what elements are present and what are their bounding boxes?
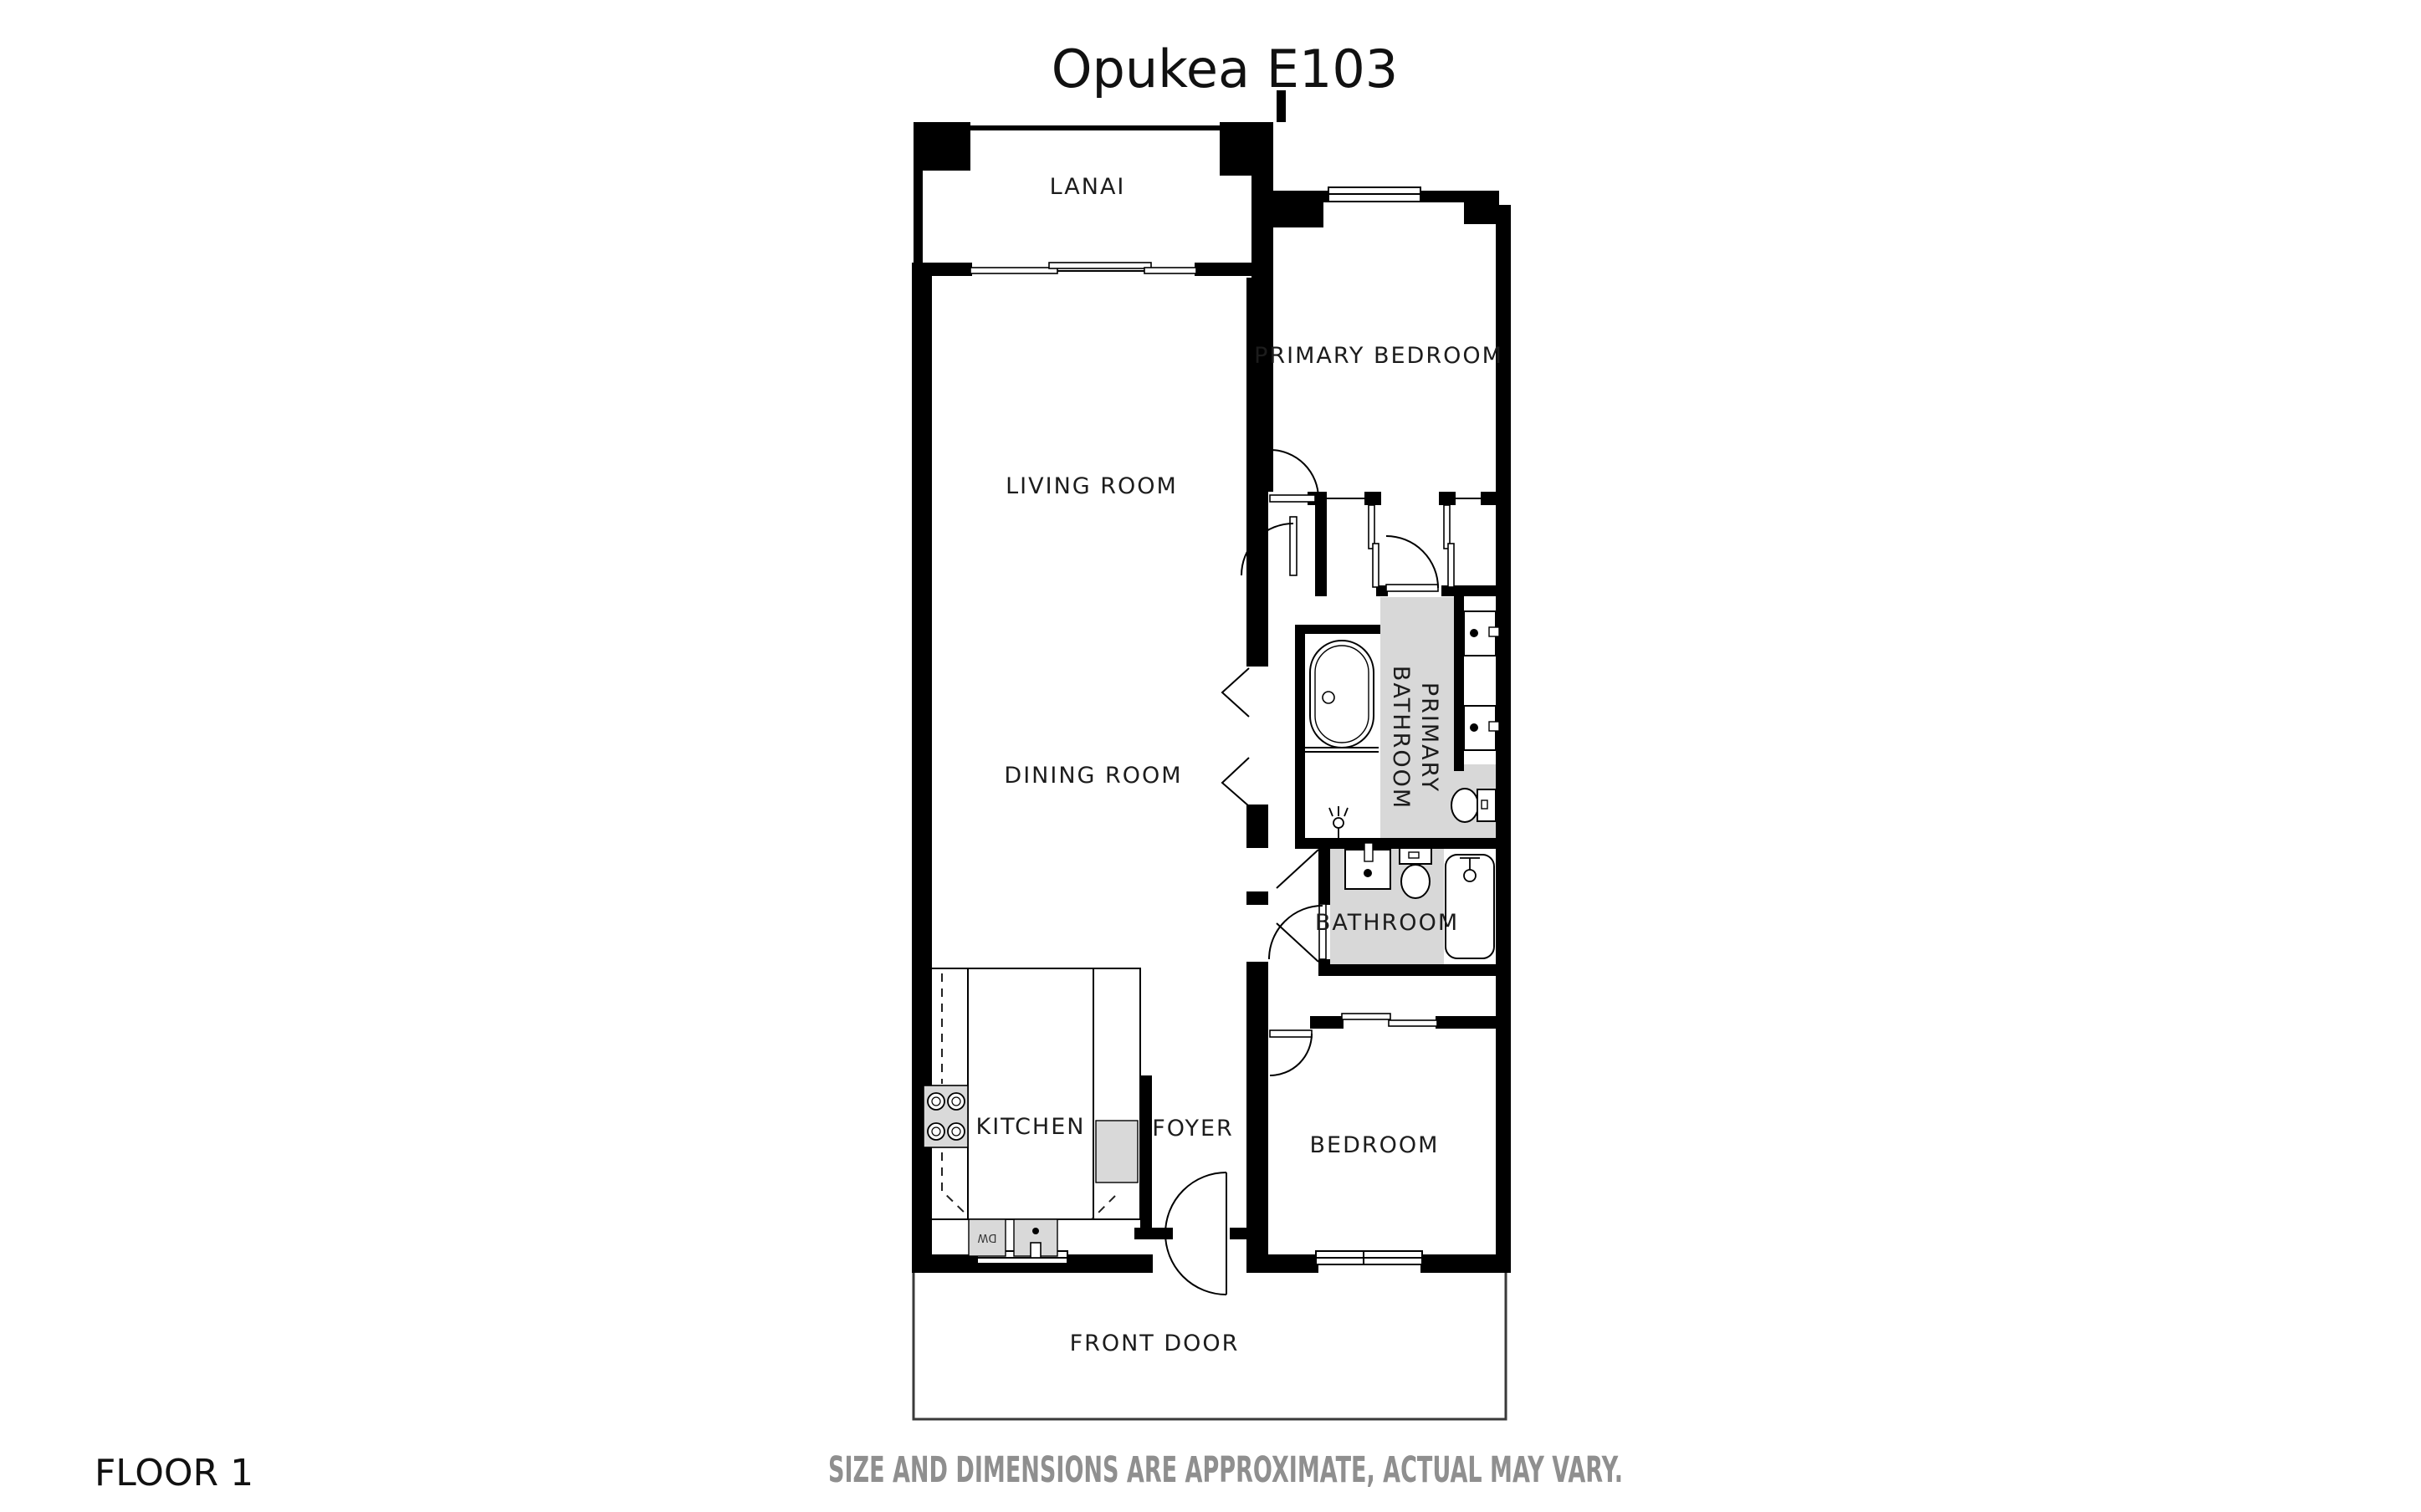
closet-slider-right (1444, 505, 1454, 587)
bedroom-door (1270, 1030, 1312, 1075)
shower-head-icon (1329, 806, 1348, 838)
bedroom-closet-slider (1342, 1014, 1437, 1026)
disclaimer-text: SIZE AND DIMENSIONS ARE APPROXIMATE, ACT… (828, 1449, 1623, 1491)
lanai-label: LANAI (1050, 174, 1126, 200)
kitchen-appliances: DW (924, 1085, 1138, 1258)
floor-plan-canvas: DW LANAI PRIMARY BEDROOM LIVING ROOM DIN… (0, 0, 2421, 1512)
tub-shower (1446, 855, 1494, 958)
dishwasher-icon: DW (969, 1219, 1006, 1256)
room-labels: LANAI PRIMARY BEDROOM LIVING ROOM DINING… (976, 174, 1503, 1356)
front-door-swing (1165, 1172, 1226, 1295)
toilet (1400, 848, 1431, 898)
floor-number-label: FLOOR 1 (95, 1452, 253, 1494)
page-title: Opukea E103 (1052, 38, 1399, 100)
opening-chevron-lower (1222, 758, 1249, 806)
lanai-sliding-glass-door (970, 263, 1196, 273)
dishwasher-label: DW (977, 1231, 996, 1244)
toilet-primary (1451, 789, 1496, 822)
kitchen-sink-icon (1014, 1219, 1057, 1258)
opening-chevron-upper (1222, 668, 1249, 717)
vestibule-door-leaf (1277, 850, 1318, 888)
svg-text:PRIMARY: PRIMARY (1416, 682, 1442, 793)
floor-plan-page: DW LANAI PRIMARY BEDROOM LIVING ROOM DIN… (0, 0, 2421, 1512)
range-icon (924, 1085, 968, 1147)
primary-bedroom-label: PRIMARY BEDROOM (1254, 343, 1503, 369)
closet-slider-left (1369, 505, 1379, 587)
vanity-sink-1 (1464, 611, 1499, 656)
refrigerator-icon (1096, 1121, 1138, 1183)
bathroom-sink (1345, 843, 1390, 889)
bedroom-label: BEDROOM (1310, 1132, 1440, 1158)
vestibule-door-leaf (1277, 923, 1318, 962)
living-room-label: LIVING ROOM (1006, 473, 1178, 499)
front-door-label: FRONT DOOR (1070, 1331, 1240, 1356)
bedroom-window (1316, 1251, 1422, 1264)
primary-bedroom-window (1328, 187, 1420, 202)
bathroom-label: BATHROOM (1315, 910, 1459, 936)
freestanding-bathtub (1310, 641, 1374, 748)
dining-room-label: DINING ROOM (1004, 763, 1182, 789)
vanity-sink-2 (1464, 706, 1499, 750)
kitchen-label: KITCHEN (976, 1114, 1086, 1140)
primary-bathroom-door (1386, 536, 1438, 591)
foyer-label: FOYER (1152, 1116, 1234, 1142)
svg-text:BATHROOM: BATHROOM (1388, 666, 1414, 810)
